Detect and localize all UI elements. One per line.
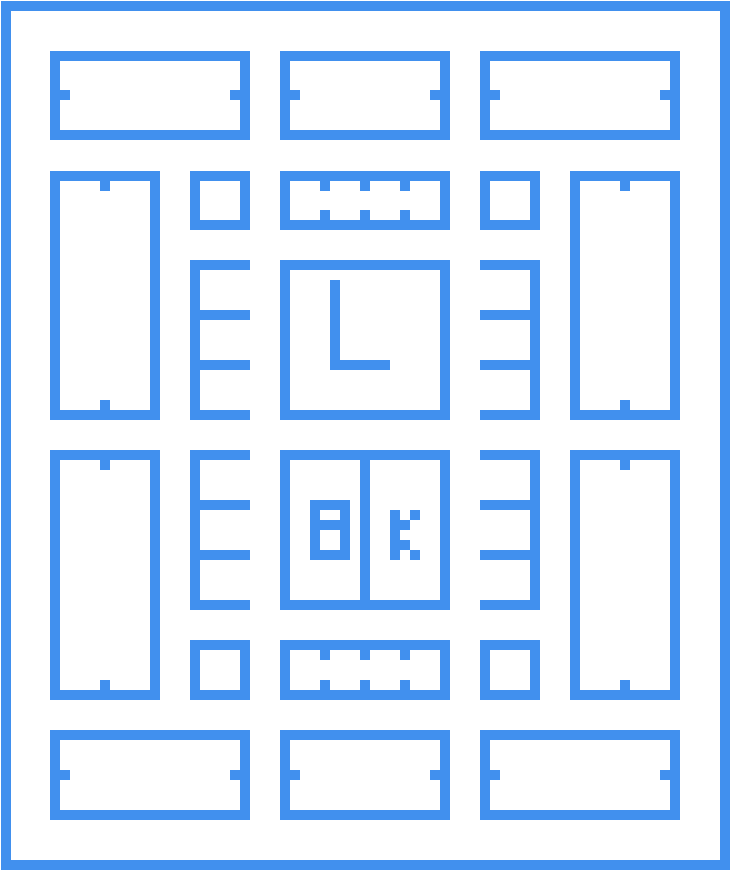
vent-bottom-seg-0 — [280, 640, 450, 650]
cabinet-lower-right-seg-0 — [480, 640, 540, 650]
hall-left-upper-seg-0 — [50, 171, 160, 181]
vent-bottom-seg-9 — [400, 680, 410, 690]
glyph-8-seg-4 — [340, 510, 350, 520]
cabinet-upper-left-seg-1 — [190, 220, 250, 230]
vent-bottom — [0, 0, 731, 871]
rack-left-upper-seg-4 — [190, 410, 250, 420]
room-bottom-right-seg-0 — [480, 730, 680, 740]
rack-right-lower — [0, 0, 731, 871]
room-bottom-center-seg-5 — [430, 770, 440, 780]
vent-top — [0, 0, 731, 871]
vent-bottom-seg-1 — [280, 690, 450, 700]
vent-bottom-seg-5 — [360, 650, 370, 660]
vent-bottom-seg-6 — [400, 650, 410, 660]
rack-left-lower-seg-1 — [190, 450, 250, 460]
glyph-k-seg-4 — [410, 550, 420, 560]
sign-room-seg-3 — [440, 450, 450, 610]
glyph-8-seg-1 — [310, 520, 350, 530]
rack-right-lower-seg-1 — [480, 450, 540, 460]
vent-bottom-seg-2 — [280, 640, 290, 700]
room-top-right-seg-0 — [480, 51, 680, 61]
rack-left-lower-seg-0 — [190, 450, 200, 610]
hall-right-upper-seg-4 — [620, 181, 630, 191]
cabinet-upper-right-seg-2 — [480, 171, 490, 230]
outer-wall-seg-2 — [1, 1, 11, 870]
rack-right-upper-seg-4 — [480, 410, 540, 420]
hall-right-upper-seg-3 — [670, 171, 680, 420]
hall-right-upper — [0, 0, 731, 871]
vent-top-seg-4 — [320, 181, 330, 191]
cabinet-lower-right — [0, 0, 731, 871]
cabinet-lower-left-seg-1 — [190, 690, 250, 700]
room-bottom-center-seg-1 — [280, 810, 450, 820]
cabinet-lower-right-seg-2 — [480, 640, 490, 700]
hall-left-lower-seg-5 — [100, 680, 110, 690]
cabinet-lower-right-seg-1 — [480, 690, 540, 700]
room-top-left-seg-0 — [50, 51, 250, 61]
rack-right-upper-seg-0 — [530, 260, 540, 420]
vent-top-seg-1 — [280, 220, 450, 230]
hall-left-lower-seg-3 — [150, 450, 160, 700]
rack-left-upper-seg-2 — [190, 310, 250, 320]
vent-top-seg-0 — [280, 171, 450, 181]
cabinet-upper-right-seg-3 — [530, 171, 540, 230]
clock-hands-seg-0 — [330, 280, 340, 370]
room-bottom-right — [0, 0, 731, 871]
room-bottom-left — [0, 0, 731, 871]
clock-hands-seg-1 — [330, 360, 390, 370]
glyph-k-seg-0 — [390, 510, 400, 560]
outer-wall-seg-3 — [720, 1, 730, 870]
hall-left-lower — [0, 0, 731, 871]
room-top-left-seg-3 — [240, 51, 250, 140]
room-bottom-center-seg-2 — [280, 730, 290, 820]
rack-left-upper-seg-1 — [190, 260, 250, 270]
room-bottom-right-seg-5 — [660, 770, 670, 780]
room-bottom-right-seg-2 — [480, 730, 490, 820]
sign-room-seg-1 — [280, 600, 450, 610]
glyph-8-seg-0 — [310, 500, 350, 510]
room-top-left-seg-1 — [50, 130, 250, 140]
cabinet-upper-left-seg-3 — [240, 171, 250, 230]
cabinet-lower-left — [0, 0, 731, 871]
floor-plan-canvas — [0, 0, 731, 871]
vent-bottom-seg-8 — [360, 680, 370, 690]
glyph-k-seg-3 — [400, 540, 410, 550]
hall-left-upper-seg-1 — [50, 410, 160, 420]
rack-right-lower-seg-0 — [530, 450, 540, 610]
room-top-right-seg-2 — [480, 51, 490, 140]
hall-left-upper-seg-2 — [50, 171, 60, 420]
rack-left-lower-seg-3 — [190, 550, 250, 560]
rack-right-upper-seg-1 — [480, 260, 540, 270]
sign-room-divider-seg-0 — [360, 450, 370, 610]
glyph-8 — [0, 0, 731, 871]
room-bottom-center — [0, 0, 731, 871]
hall-right-lower-seg-1 — [570, 690, 680, 700]
hall-left-upper-seg-3 — [150, 171, 160, 420]
vent-top-seg-8 — [360, 210, 370, 220]
cabinet-lower-left-seg-3 — [240, 640, 250, 700]
rack-right-lower-seg-2 — [480, 500, 540, 510]
hall-left-upper-seg-4 — [100, 181, 110, 191]
hall-right-upper-seg-1 — [570, 410, 680, 420]
rack-right-upper-seg-2 — [480, 310, 540, 320]
room-bottom-left-seg-1 — [50, 810, 250, 820]
hall-left-lower-seg-1 — [50, 690, 160, 700]
hall-left-lower-seg-0 — [50, 450, 160, 460]
cabinet-lower-right-seg-3 — [530, 640, 540, 700]
vent-top-seg-9 — [400, 210, 410, 220]
room-top-right-seg-4 — [490, 90, 500, 100]
room-bottom-right-seg-4 — [490, 770, 500, 780]
rack-right-lower-seg-3 — [480, 550, 540, 560]
room-top-right — [0, 0, 731, 871]
room-top-left — [0, 0, 731, 871]
sign-room-divider — [0, 0, 731, 871]
room-top-center-seg-2 — [280, 51, 290, 140]
rack-left-lower-seg-2 — [190, 500, 250, 510]
cabinet-lower-left-seg-0 — [190, 640, 250, 650]
outer-wall — [0, 0, 731, 871]
glyph-8-seg-6 — [340, 530, 350, 550]
room-bottom-center-seg-4 — [290, 770, 300, 780]
vent-bottom-seg-7 — [320, 680, 330, 690]
room-bottom-right-seg-3 — [670, 730, 680, 820]
room-top-center-seg-0 — [280, 51, 450, 61]
hall-right-lower-seg-3 — [670, 450, 680, 700]
rack-right-lower-seg-4 — [480, 600, 540, 610]
room-bottom-right-seg-1 — [480, 810, 680, 820]
hall-right-lower-seg-4 — [620, 460, 630, 470]
room-top-right-seg-1 — [480, 130, 680, 140]
rack-right-upper-seg-3 — [480, 360, 540, 370]
cabinet-upper-left — [0, 0, 731, 871]
vent-top-seg-5 — [360, 181, 370, 191]
room-top-center-seg-5 — [430, 90, 440, 100]
room-bottom-center-seg-3 — [440, 730, 450, 820]
hall-right-upper-seg-2 — [570, 171, 580, 420]
rack-left-lower-seg-4 — [190, 600, 250, 610]
hall-right-upper-seg-5 — [620, 400, 630, 410]
rack-right-upper — [0, 0, 731, 871]
room-top-left-seg-5 — [230, 90, 240, 100]
room-top-right-seg-5 — [660, 90, 670, 100]
vent-top-seg-3 — [440, 171, 450, 230]
glyph-k — [0, 0, 731, 871]
room-top-center-seg-3 — [440, 51, 450, 140]
outer-wall-seg-0 — [1, 1, 730, 11]
clock-room-seg-0 — [280, 260, 450, 270]
vent-top-seg-7 — [320, 210, 330, 220]
room-bottom-left-seg-0 — [50, 730, 250, 740]
cabinet-upper-right — [0, 0, 731, 871]
hall-right-lower-seg-0 — [570, 450, 680, 460]
glyph-k-seg-2 — [400, 520, 410, 530]
hall-right-lower — [0, 0, 731, 871]
room-top-left-seg-4 — [60, 90, 70, 100]
glyph-8-seg-3 — [310, 510, 320, 520]
cabinet-upper-left-seg-0 — [190, 171, 250, 181]
glyph-8-seg-5 — [310, 530, 320, 550]
cabinet-upper-left-seg-2 — [190, 171, 200, 230]
cabinet-lower-left-seg-2 — [190, 640, 200, 700]
sign-room-seg-2 — [280, 450, 290, 610]
hall-left-upper-seg-5 — [100, 400, 110, 410]
cabinet-upper-right-seg-1 — [480, 220, 540, 230]
hall-right-upper-seg-0 — [570, 171, 680, 181]
room-top-center-seg-1 — [280, 130, 450, 140]
room-top-center-seg-4 — [290, 90, 300, 100]
vent-bottom-seg-3 — [440, 640, 450, 700]
rack-left-upper — [0, 0, 731, 871]
room-top-right-seg-3 — [670, 51, 680, 140]
room-bottom-center-seg-0 — [280, 730, 450, 740]
clock-room-seg-1 — [280, 410, 450, 420]
cabinet-upper-right-seg-0 — [480, 171, 540, 181]
room-top-left-seg-2 — [50, 51, 60, 140]
vent-top-seg-6 — [400, 181, 410, 191]
clock-room-seg-3 — [440, 260, 450, 420]
room-bottom-left-seg-4 — [60, 770, 70, 780]
glyph-8-seg-2 — [310, 550, 350, 560]
rack-left-upper-seg-3 — [190, 360, 250, 370]
glyph-k-seg-1 — [410, 510, 420, 520]
hall-left-lower-seg-2 — [50, 450, 60, 700]
vent-bottom-seg-4 — [320, 650, 330, 660]
room-bottom-left-seg-5 — [230, 770, 240, 780]
clock-room — [0, 0, 731, 871]
sign-room-seg-0 — [280, 450, 450, 460]
hall-right-lower-seg-2 — [570, 450, 580, 700]
room-top-center — [0, 0, 731, 871]
hall-right-lower-seg-5 — [620, 680, 630, 690]
room-bottom-left-seg-2 — [50, 730, 60, 820]
outer-wall-seg-1 — [1, 860, 730, 870]
rack-left-upper-seg-0 — [190, 260, 200, 420]
clock-room-seg-2 — [280, 260, 290, 420]
room-bottom-left-seg-3 — [240, 730, 250, 820]
hall-left-lower-seg-4 — [100, 460, 110, 470]
rack-left-lower — [0, 0, 731, 871]
clock-hands — [0, 0, 731, 871]
sign-room — [0, 0, 731, 871]
hall-left-upper — [0, 0, 731, 871]
vent-top-seg-2 — [280, 171, 290, 230]
